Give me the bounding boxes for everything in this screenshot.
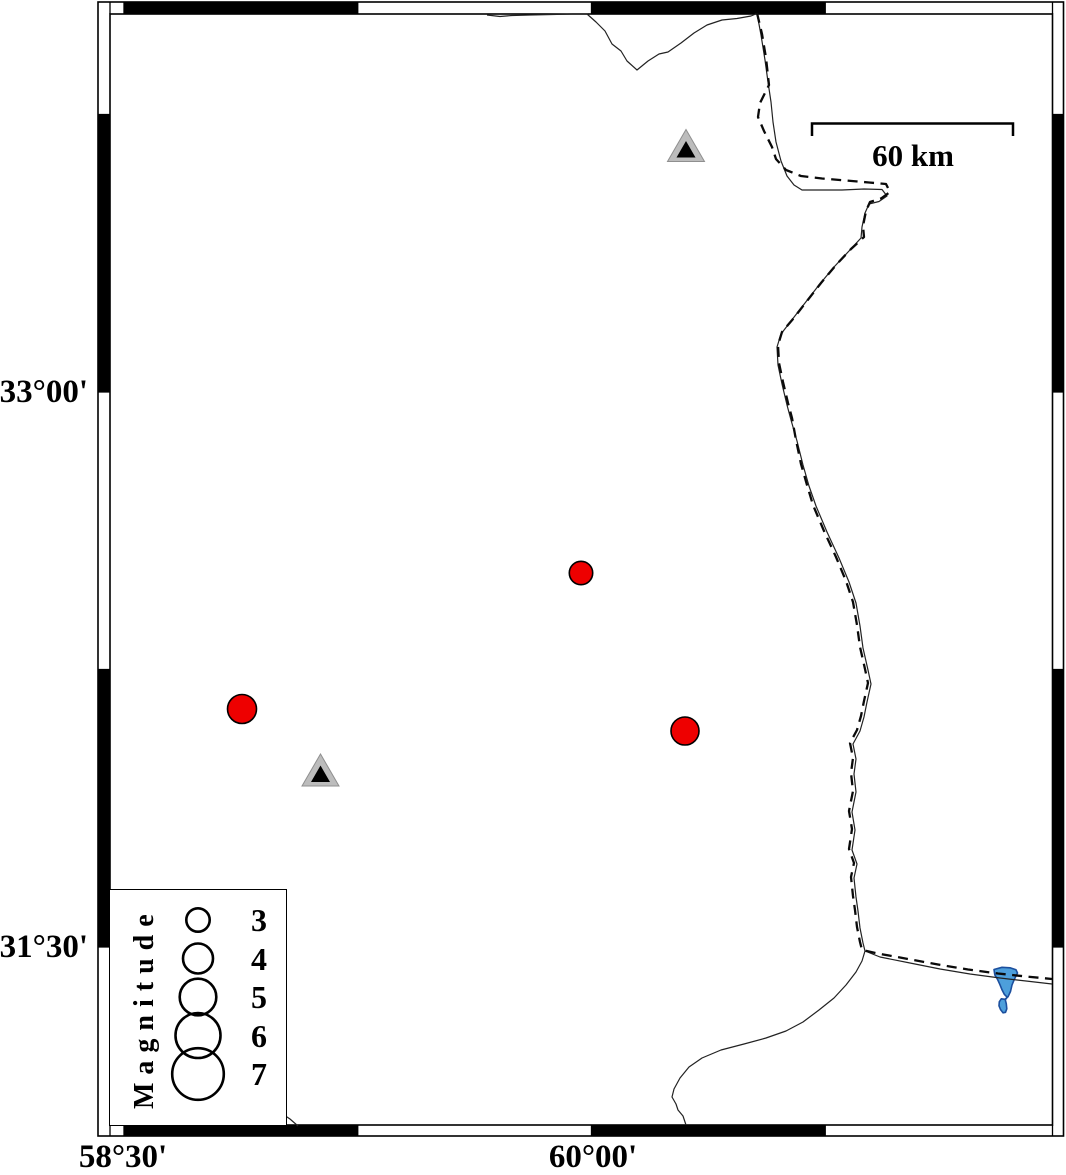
scale-bar [812, 124, 1013, 137]
legend-magnitude-value: 6 [239, 1016, 279, 1056]
earthquake-epicenter-marker [671, 717, 699, 745]
earthquakes-layer [228, 561, 700, 745]
legend-magnitude-circle [176, 1013, 221, 1058]
lat-tick-label-33-00: 33°00' [0, 371, 88, 413]
earthquake-epicenter-marker [228, 695, 257, 724]
lat-tick-label-31-30: 31°30' [0, 926, 88, 968]
lon-tick-label-60-00: 60°00' [503, 1139, 683, 1175]
stations-layer [302, 130, 705, 787]
earthquake-epicenter-marker [569, 561, 592, 584]
legend-magnitude-value: 5 [239, 977, 279, 1017]
lon-tick-label-58-30: 58°30' [33, 1139, 213, 1175]
seismicity-map-figure: 33°00' 31°30' 58°30' 60°00' 60 km Magnit… [0, 0, 1066, 1175]
legend-magnitude-circle [183, 944, 213, 974]
magnitude-legend: Magnitude 34567 [109, 889, 287, 1126]
scale-bar-label: 60 km [813, 138, 1013, 174]
legend-magnitude-circle [186, 908, 209, 931]
legend-magnitude-circle [172, 1048, 224, 1100]
legend-magnitude-value: 4 [239, 939, 279, 979]
legend-magnitude-value: 7 [239, 1054, 279, 1094]
legend-magnitude-circle [180, 979, 217, 1016]
river-thin-line [672, 951, 865, 1125]
legend-magnitude-value: 3 [239, 900, 279, 940]
